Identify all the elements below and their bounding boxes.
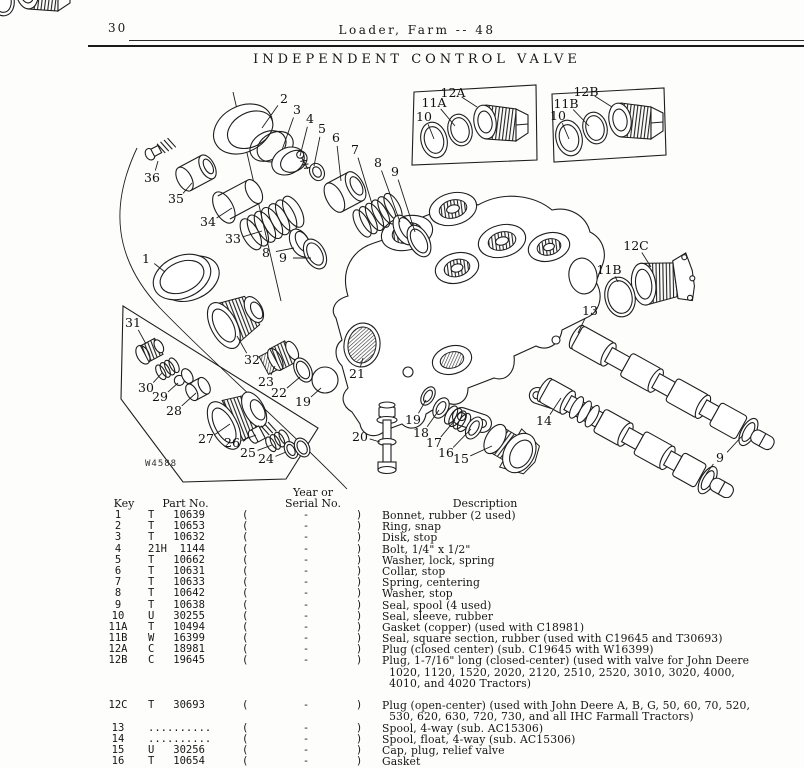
description-cell: 530, 620, 630, 720, 730, and all IHC Far… <box>382 711 694 722</box>
key-cell: 8 <box>103 588 133 599</box>
serial-dash: - <box>299 700 313 711</box>
part-no-cell: T 10654 <box>148 756 205 767</box>
serial-open-paren: ( <box>242 700 248 711</box>
serial-close-paren: ) <box>356 588 362 599</box>
serial-open-paren: ( <box>242 588 248 599</box>
serial-dash: - <box>299 532 313 543</box>
key-cell: 3 <box>103 532 133 543</box>
table-row: 8T 10642(-)Washer, stop <box>0 588 804 599</box>
key-cell: 12B <box>103 655 133 666</box>
description-cell: Gasket <box>382 756 420 767</box>
part-no-cell: T 10632 <box>148 532 205 543</box>
col-header-serial-no: Serial No. <box>258 497 368 510</box>
part-no-cell: T 30693 <box>148 700 205 711</box>
key-cell: 16 <box>103 756 133 767</box>
part-no-cell: C 19645 <box>148 655 205 666</box>
serial-dash: - <box>299 756 313 767</box>
serial-open-paren: ( <box>242 532 248 543</box>
parts-table: Year or Key Part No. Serial No. Descript… <box>0 0 804 761</box>
serial-close-paren: ) <box>356 700 362 711</box>
table-row: 9T 10638(-)Seal, spool (4 used) <box>0 600 804 611</box>
table-rows: 1T 10639(-)Bonnet, rubber (2 used)2T 106… <box>0 510 804 767</box>
description-cell: Plug, 1-7/16" long (closed-center) (used… <box>382 655 749 666</box>
table-row: 12BC 19645(-)Plug, 1-7/16" long (closed-… <box>0 655 804 666</box>
table-row: 16T 10654(-)Gasket <box>0 756 804 767</box>
table-row: 4010, and 4020 Tractors) <box>0 678 804 689</box>
table-row: 3T 10632(-)Disk, stop <box>0 532 804 543</box>
key-cell: 12C <box>103 700 133 711</box>
catalog-page: { "header": { "page_number": "30", "titl… <box>0 0 804 761</box>
description-cell: 4010, and 4020 Tractors) <box>382 678 531 689</box>
serial-dash: - <box>299 588 313 599</box>
table-row: 530, 620, 630, 720, 730, and all IHC Far… <box>0 711 804 722</box>
serial-close-paren: ) <box>356 532 362 543</box>
serial-close-paren: ) <box>356 756 362 767</box>
serial-open-paren: ( <box>242 655 248 666</box>
description-cell: Disk, stop <box>382 532 437 543</box>
part-no-cell: T 10642 <box>148 588 205 599</box>
serial-close-paren: ) <box>356 655 362 666</box>
serial-open-paren: ( <box>242 756 248 767</box>
description-cell: Washer, stop <box>382 588 453 599</box>
col-header-key: Key <box>103 497 145 510</box>
serial-dash: - <box>299 655 313 666</box>
